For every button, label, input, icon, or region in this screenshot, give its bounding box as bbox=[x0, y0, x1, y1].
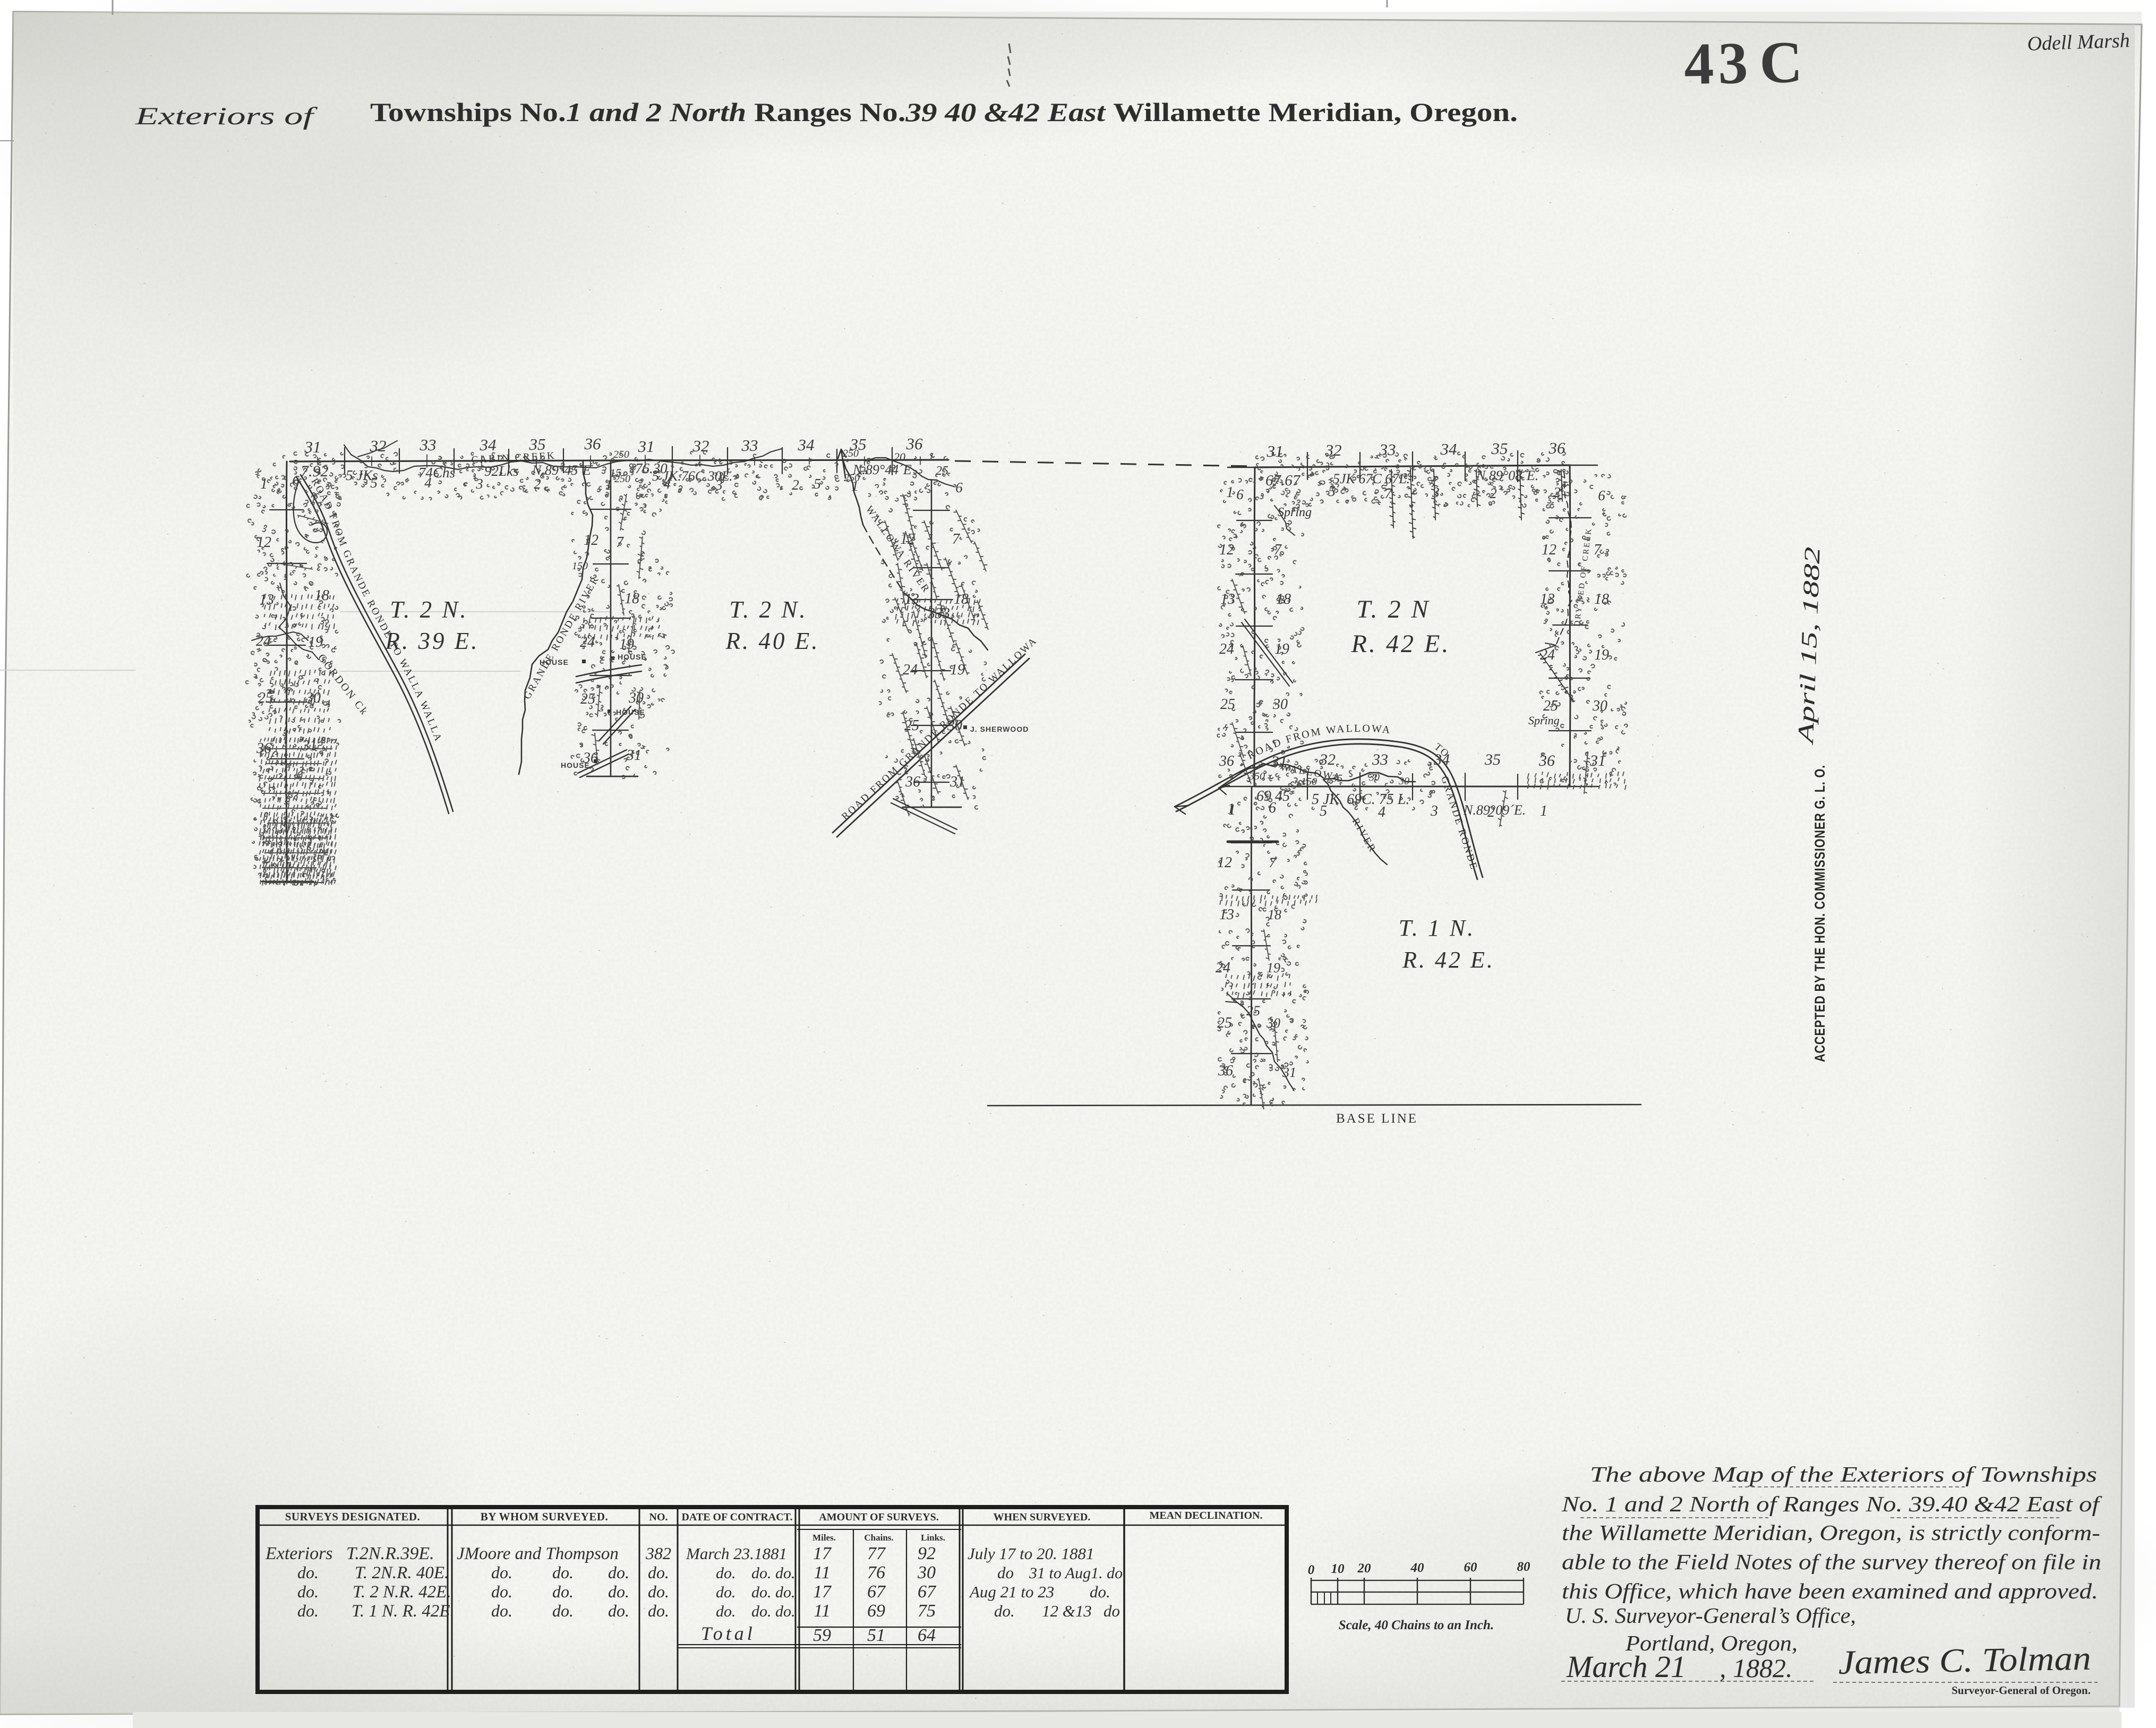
svg-text:T. 2N.R. 40E.: T. 2N.R. 40E. bbox=[355, 1563, 449, 1582]
svg-text:250: 250 bbox=[613, 449, 629, 460]
svg-text:do: do bbox=[1103, 1602, 1120, 1620]
svg-text:R. 39 E.: R. 39 E. bbox=[385, 628, 480, 654]
svg-text:35: 35 bbox=[850, 435, 867, 454]
svg-text:1: 1 bbox=[1226, 484, 1234, 501]
svg-text:do.: do. bbox=[297, 1601, 319, 1620]
svg-text:MEAN DECLINATION.: MEAN DECLINATION. bbox=[1150, 1510, 1263, 1521]
svg-text:76: 76 bbox=[867, 1563, 885, 1582]
svg-text:33: 33 bbox=[1379, 440, 1396, 459]
svg-text:77: 77 bbox=[867, 1544, 886, 1563]
svg-text:19: 19 bbox=[1594, 647, 1609, 663]
svg-text:92: 92 bbox=[918, 1544, 936, 1563]
svg-text:7: 7 bbox=[952, 531, 960, 548]
svg-text:N.89°44´E: N.89°44´E bbox=[852, 462, 912, 477]
svg-text:T. 2 N.R. 42E.: T. 2 N.R. 42E. bbox=[353, 1582, 451, 1602]
svg-text:BY WHOM SURVEYED.: BY WHOM SURVEYED. bbox=[481, 1510, 609, 1523]
svg-text:5: 5 bbox=[814, 476, 821, 492]
svg-text:Odell Marsh: Odell Marsh bbox=[2027, 29, 2131, 55]
svg-text:SURVEYS DESIGNATED.: SURVEYS DESIGNATED. bbox=[285, 1510, 421, 1523]
svg-text:17: 17 bbox=[813, 1544, 832, 1563]
svg-text:AMOUNT OF SURVEYS.: AMOUNT OF SURVEYS. bbox=[819, 1511, 938, 1523]
svg-text:35: 35 bbox=[1491, 439, 1508, 458]
svg-text:35: 35 bbox=[1484, 751, 1501, 768]
svg-text:T. 1 N.: T. 1 N. bbox=[1399, 915, 1476, 941]
svg-text:do.: do. bbox=[608, 1563, 629, 1582]
svg-text:33: 33 bbox=[741, 436, 758, 455]
svg-text:N.89°09´E.: N.89°09´E. bbox=[1463, 802, 1526, 818]
svg-text:43C: 43C bbox=[1683, 29, 1807, 97]
svg-text:James C. Tolman: James C. Tolman bbox=[1838, 1639, 2091, 1681]
svg-text:do.: do. bbox=[297, 1582, 319, 1601]
svg-text:31: 31 bbox=[638, 437, 655, 456]
svg-text:NO.: NO. bbox=[649, 1511, 668, 1523]
svg-text:do. do.: do. do. bbox=[751, 1564, 795, 1582]
svg-text:11: 11 bbox=[814, 1601, 830, 1621]
svg-text:R. 42 E.: R. 42 E. bbox=[1402, 947, 1495, 973]
svg-text:60: 60 bbox=[1464, 1560, 1478, 1575]
svg-text:do.: do. bbox=[552, 1563, 574, 1582]
svg-text:Spring: Spring bbox=[1528, 714, 1560, 727]
svg-text:do.: do. bbox=[491, 1601, 512, 1620]
svg-text:6: 6 bbox=[1236, 486, 1244, 502]
svg-text:do.: do. bbox=[648, 1582, 669, 1601]
svg-text:12: 12 bbox=[584, 532, 598, 549]
svg-text:12: 12 bbox=[1542, 542, 1556, 558]
svg-text:U. S. Surveyor-General’s Offic: U. S. Surveyor-General’s Office, bbox=[1565, 1603, 1856, 1628]
svg-text:do.: do. bbox=[552, 1582, 574, 1601]
svg-text:40: 40 bbox=[1410, 1561, 1425, 1575]
svg-text:31: 31 bbox=[1271, 753, 1287, 771]
svg-text:30: 30 bbox=[917, 1563, 936, 1582]
svg-text:The above Map of the Exterior: The above Map of the Exteriors of Townsh… bbox=[1590, 1462, 2097, 1486]
svg-text:0: 0 bbox=[1308, 1563, 1315, 1577]
svg-text:Links.: Links. bbox=[921, 1533, 945, 1543]
svg-text:25: 25 bbox=[1246, 1003, 1260, 1019]
svg-text:12: 12 bbox=[1219, 542, 1234, 558]
svg-text:Miles.: Miles. bbox=[812, 1533, 836, 1543]
svg-text:Aug 21 to 23: Aug 21 to 23 bbox=[969, 1582, 1054, 1601]
svg-text:do.: do. bbox=[994, 1602, 1015, 1620]
svg-text:64: 64 bbox=[918, 1626, 936, 1645]
svg-text:24: 24 bbox=[1540, 647, 1555, 663]
svg-text:24: 24 bbox=[903, 662, 918, 678]
svg-text:36: 36 bbox=[1548, 439, 1566, 457]
svg-text:34: 34 bbox=[480, 435, 497, 454]
svg-text:31: 31 bbox=[1267, 442, 1284, 460]
svg-text:67: 67 bbox=[867, 1582, 886, 1602]
svg-text:the Willamette Meridian, Orego: the Willamette Meridian, Oregon, is stri… bbox=[1562, 1520, 2100, 1545]
svg-text:34: 34 bbox=[1440, 440, 1457, 458]
svg-text:ACCEPTED BY THE HON. COMMISSIO: ACCEPTED BY THE HON. COMMISSIONER G. L. … bbox=[1812, 765, 1828, 1062]
svg-text:July 17 to 20. 1881: July 17 to 20. 1881 bbox=[968, 1544, 1094, 1563]
svg-text:Total: Total bbox=[701, 1623, 756, 1644]
svg-text:25: 25 bbox=[936, 464, 948, 478]
svg-text:36: 36 bbox=[1538, 752, 1555, 769]
svg-text:do.: do. bbox=[491, 1563, 512, 1582]
svg-text:1: 1 bbox=[1540, 803, 1547, 819]
svg-text:WHEN SURVEYED.: WHEN SURVEYED. bbox=[994, 1511, 1091, 1523]
svg-text:J. SHERWOOD: J. SHERWOOD bbox=[970, 725, 1029, 733]
svg-text:80: 80 bbox=[1517, 1560, 1531, 1574]
svg-text:36: 36 bbox=[906, 434, 923, 453]
svg-text:do.: do. bbox=[608, 1582, 629, 1601]
svg-text:19: 19 bbox=[950, 662, 965, 678]
svg-text:Surveyor-General of Oregon.: Surveyor-General of Oregon. bbox=[1952, 1684, 2091, 1697]
svg-text:30: 30 bbox=[1592, 698, 1607, 714]
svg-text:do.: do. bbox=[648, 1563, 669, 1582]
svg-text:do: do bbox=[997, 1563, 1014, 1582]
svg-text:No. 1 and 2 North of Ra: No. 1 and 2 North of Ranges No. 39.40 &4… bbox=[1561, 1492, 2103, 1516]
svg-text:R. 42 E.: R. 42 E. bbox=[1351, 630, 1451, 658]
svg-text:1: 1 bbox=[1227, 801, 1235, 817]
svg-text:Exteriors: Exteriors bbox=[265, 1544, 333, 1563]
svg-text:March 21: March 21 bbox=[1566, 1649, 1686, 1684]
svg-text:34: 34 bbox=[1433, 751, 1450, 768]
svg-text:7: 7 bbox=[1384, 485, 1392, 501]
svg-text:74Chs: 74Chs bbox=[418, 465, 455, 481]
svg-text:R. 40 E.: R. 40 E. bbox=[725, 628, 820, 654]
svg-text:51: 51 bbox=[867, 1626, 885, 1645]
svg-text:92Lks: 92Lks bbox=[484, 463, 519, 479]
svg-text:36: 36 bbox=[1218, 1063, 1233, 1079]
svg-text:25: 25 bbox=[1543, 698, 1558, 714]
svg-text:do.: do. bbox=[716, 1603, 736, 1620]
svg-text:36: 36 bbox=[905, 774, 920, 790]
svg-text:DATE OF CONTRACT.: DATE OF CONTRACT. bbox=[681, 1511, 792, 1523]
svg-text:do.: do. bbox=[491, 1582, 512, 1601]
svg-text:do.: do. bbox=[1090, 1582, 1110, 1601]
svg-text:do.: do. bbox=[608, 1601, 629, 1620]
svg-text:do.: do. bbox=[716, 1564, 736, 1582]
svg-text:69: 69 bbox=[867, 1601, 885, 1621]
svg-text:20: 20 bbox=[1357, 1561, 1372, 1576]
svg-text:T. 2 N.: T. 2 N. bbox=[729, 596, 807, 623]
svg-text:13: 13 bbox=[1219, 906, 1234, 923]
svg-text:T. 1 N. R. 42E.: T. 1 N. R. 42E. bbox=[352, 1602, 455, 1621]
svg-text:BASE LINE: BASE LINE bbox=[1336, 1111, 1418, 1126]
svg-text:10: 10 bbox=[1331, 1562, 1345, 1576]
svg-text:32: 32 bbox=[370, 437, 387, 455]
svg-text:67: 67 bbox=[918, 1582, 937, 1602]
svg-text:12: 12 bbox=[256, 534, 271, 551]
svg-text:382: 382 bbox=[645, 1544, 671, 1563]
svg-text:59: 59 bbox=[813, 1626, 831, 1645]
svg-text:HOUSE: HOUSE bbox=[540, 658, 569, 666]
svg-text:6: 6 bbox=[955, 480, 963, 495]
svg-text:13: 13 bbox=[259, 592, 274, 608]
svg-text:T. 2 N.: T. 2 N. bbox=[390, 596, 468, 623]
svg-text:T. 2 N: T. 2 N bbox=[1356, 595, 1430, 623]
svg-text:11: 11 bbox=[814, 1563, 830, 1582]
svg-text:do.: do. bbox=[648, 1601, 669, 1620]
svg-text:17: 17 bbox=[813, 1582, 832, 1602]
svg-text:19: 19 bbox=[1267, 960, 1280, 976]
svg-text:Chains.: Chains. bbox=[864, 1533, 893, 1543]
svg-text:, 1882.: , 1882. bbox=[1719, 1653, 1793, 1683]
svg-text:33: 33 bbox=[1372, 751, 1388, 768]
svg-text:3: 3 bbox=[1430, 803, 1438, 819]
svg-text:34: 34 bbox=[798, 435, 815, 454]
svg-text:able to the Field Notes of the: able to the Field Notes of the survey th… bbox=[1562, 1550, 2101, 1574]
svg-text:31 to Aug1. do.: 31 to Aug1. do. bbox=[1029, 1564, 1127, 1582]
svg-text:36: 36 bbox=[584, 434, 602, 453]
svg-text:JMoore and Thompson: JMoore and Thompson bbox=[457, 1544, 619, 1563]
svg-text:2: 2 bbox=[792, 477, 799, 493]
svg-text:do. do.: do. do. bbox=[751, 1603, 795, 1620]
svg-text:18: 18 bbox=[1594, 591, 1609, 608]
svg-text:33: 33 bbox=[420, 435, 437, 454]
svg-text:Townships No.1 and 2 North Ran: Townships No.1 and 2 North Ranges No.39 … bbox=[370, 97, 1518, 127]
svg-text:12 &13: 12 &13 bbox=[1042, 1602, 1092, 1620]
svg-text:do.: do. bbox=[716, 1584, 736, 1601]
svg-text:this Office, which have been e: this Office, which have been examined an… bbox=[1562, 1579, 2098, 1603]
svg-text:do.: do. bbox=[552, 1601, 574, 1620]
svg-text:75: 75 bbox=[918, 1601, 936, 1621]
svg-text:30: 30 bbox=[1398, 775, 1409, 787]
svg-text:Scale, 40 Chains to an Inch.: Scale, 40 Chains to an Inch. bbox=[1339, 1618, 1494, 1632]
svg-text:30: 30 bbox=[1272, 696, 1288, 713]
svg-text:36: 36 bbox=[1219, 753, 1234, 769]
svg-text:31: 31 bbox=[626, 747, 641, 764]
svg-text:18: 18 bbox=[624, 591, 639, 607]
svg-text:T.2N.R.39E.: T.2N.R.39E. bbox=[346, 1544, 434, 1563]
svg-text:March 23.1881: March 23.1881 bbox=[686, 1544, 787, 1563]
svg-text:do. do.: do. do. bbox=[751, 1584, 795, 1601]
svg-text:Exteriors of: Exteriors of bbox=[134, 102, 318, 130]
svg-text:do.: do. bbox=[297, 1563, 319, 1582]
svg-text:6: 6 bbox=[1598, 487, 1605, 503]
